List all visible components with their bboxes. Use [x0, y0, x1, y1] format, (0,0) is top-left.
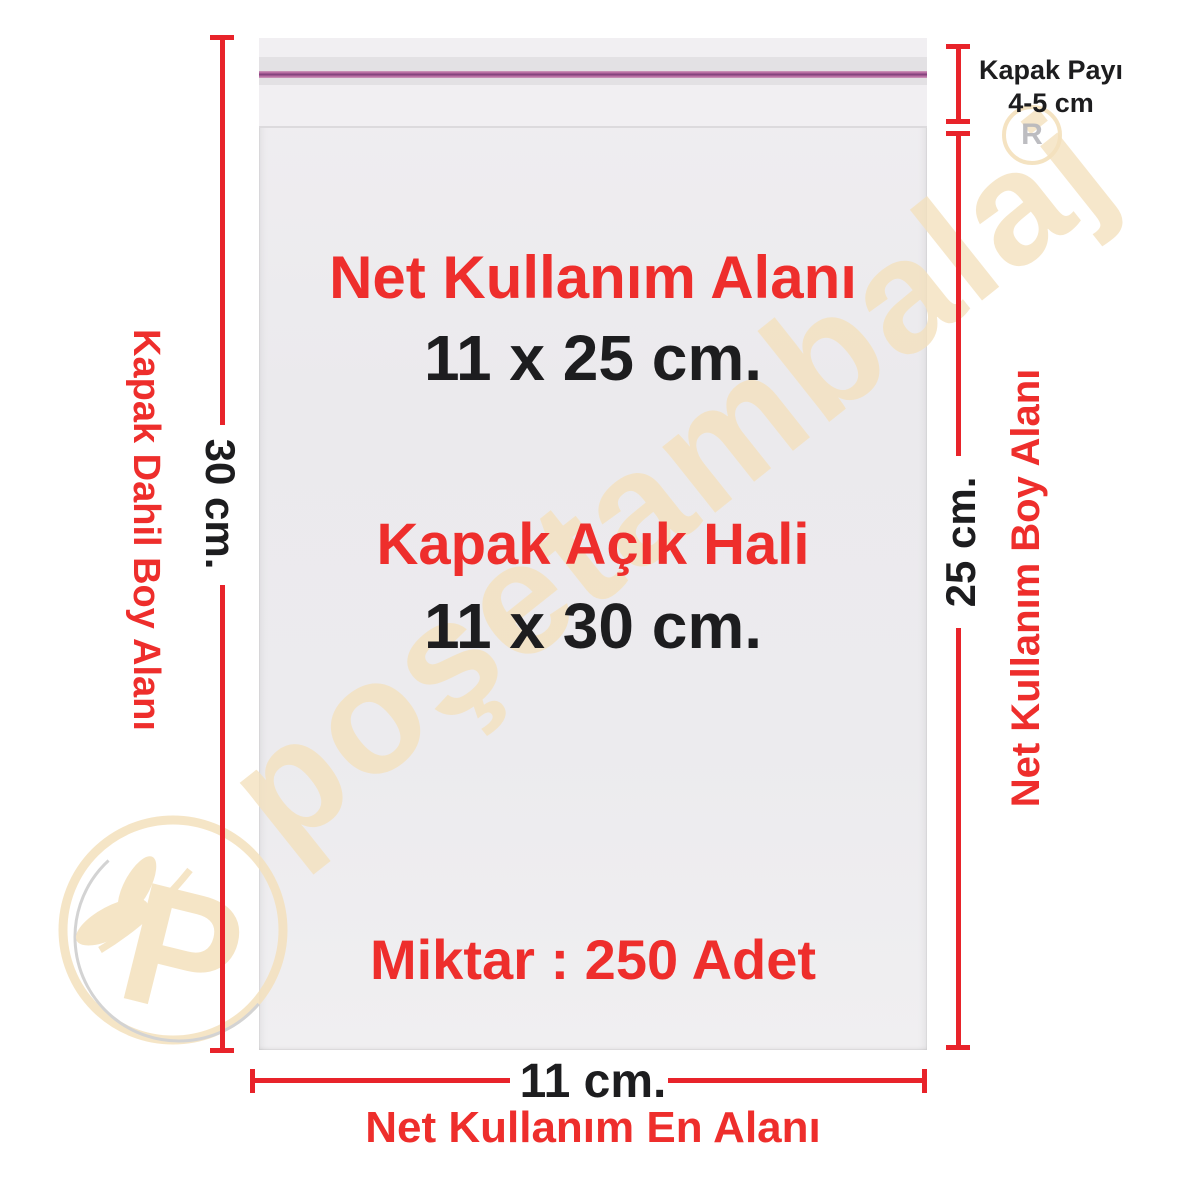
left-dimension-value: 30 cm. [199, 439, 241, 570]
adhesive-tape-strip [259, 71, 927, 78]
right-dim-bottom-cap [946, 1045, 970, 1050]
right-dim-line-lower [956, 628, 961, 1045]
left-dim-bottom-cap [210, 1048, 234, 1053]
flap-dim-line [956, 49, 961, 119]
bottom-dimension-value: 11 cm. [259, 1058, 927, 1106]
left-side-label: Kapak Dahil Boy Alanı [127, 329, 165, 731]
flap-fold-line [259, 126, 927, 128]
product-dimension-diagram: P poşetambalaj R 30 cm. Kapak Dahil Boy … [0, 0, 1180, 1180]
flap-note-line1: Kapak Payı [966, 54, 1136, 87]
right-side-label: Net Kullanım Boy Alanı [1006, 369, 1046, 808]
flap-note-line2: 4-5 cm [966, 87, 1136, 120]
right-dimension-value: 25 cm. [940, 477, 982, 608]
bottom-width-label: Net Kullanım En Alanı [259, 1106, 927, 1150]
left-dim-line-upper [220, 40, 225, 425]
registered-letter: R [1021, 118, 1043, 152]
net-area-size: 11 x 25 cm. [259, 326, 927, 390]
flap-open-title: Kapak Açık Hali [259, 516, 927, 574]
quantity-label: Miktar : 250 Adet [259, 932, 927, 988]
flap-allowance-note: Kapak Payı 4-5 cm [966, 54, 1136, 121]
right-dim-line-upper [956, 136, 961, 456]
flap-open-size: 11 x 30 cm. [259, 594, 927, 658]
left-dim-line-lower [220, 585, 225, 1048]
net-area-title: Net Kullanım Alanı [259, 248, 927, 308]
